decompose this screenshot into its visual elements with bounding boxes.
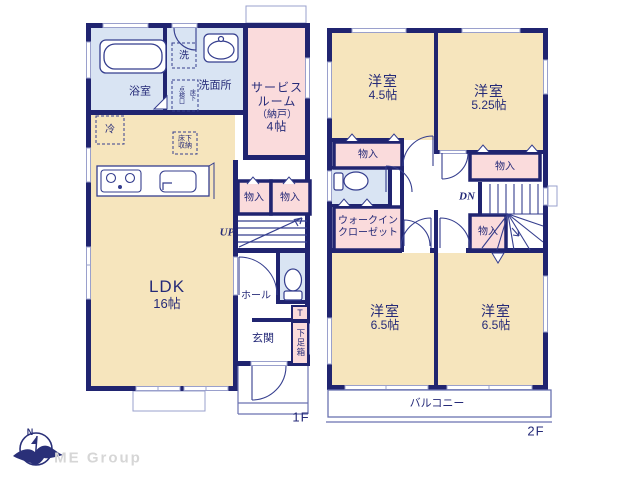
toilet-2f-icon (334, 172, 368, 190)
sink-icon (160, 171, 196, 192)
floor1-plan (86, 6, 310, 414)
compass-icon (13, 433, 63, 465)
floor-plan-drawing (0, 0, 640, 480)
closet-2f-c (470, 215, 506, 250)
closet-2f-a (334, 142, 402, 168)
entrance-porch (238, 366, 308, 414)
shoe-cabinet (292, 322, 308, 364)
washbasin-icon (204, 34, 238, 62)
shoe-t-box (292, 306, 308, 320)
bay-window-bump (246, 6, 306, 23)
closet-1f-right (271, 181, 310, 214)
closet-1f-left (238, 181, 271, 214)
toilet-1f-icon (284, 269, 302, 300)
floor2-plan (326, 28, 557, 422)
walk-in-closet (334, 207, 402, 250)
terrace-step (133, 391, 205, 411)
balcony-outline (326, 390, 552, 422)
closet-2f-b (470, 153, 540, 180)
kitchen-icon (97, 163, 214, 199)
bathtub-icon (100, 40, 166, 73)
floor-plan-canvas: 浴室 洗 洗面所 床下 点検口 サービス ルーム （納戸） 4帖 冷 床下 収納… (0, 0, 640, 480)
